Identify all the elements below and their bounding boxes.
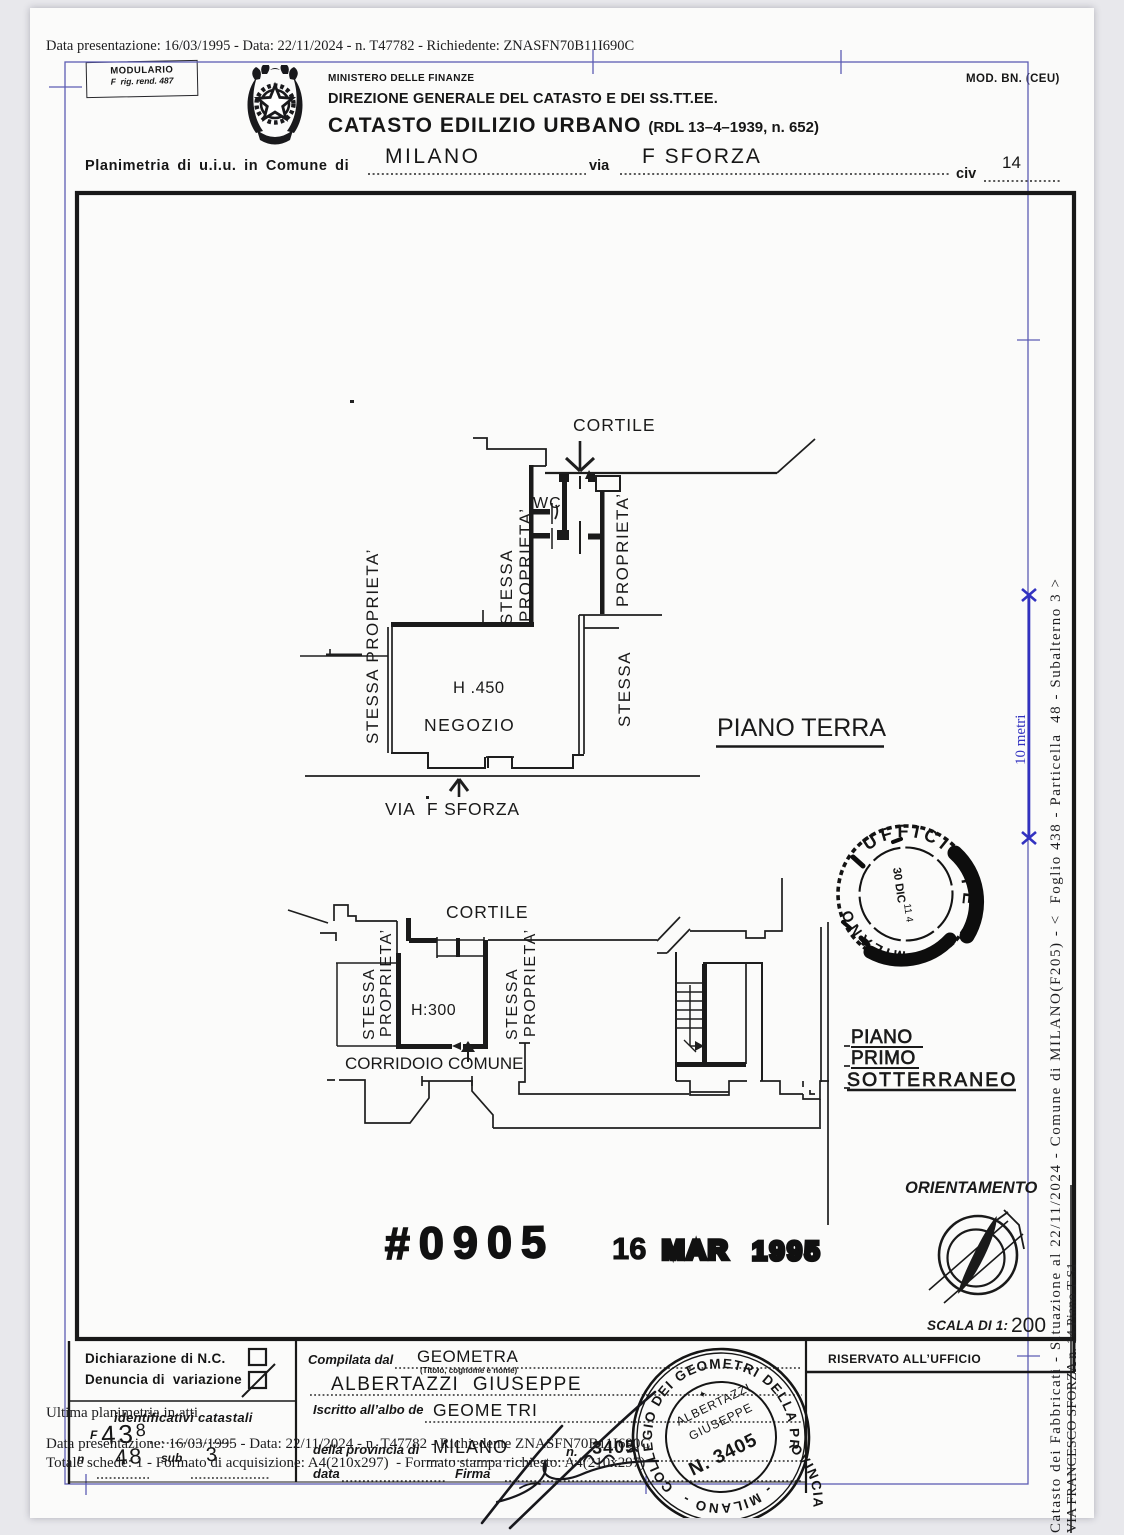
svg-text:PIANO: PIANO [851, 1027, 913, 1048]
svg-text:1995: 1995 [752, 1236, 822, 1266]
svg-text:WC: WC [533, 495, 562, 512]
svg-text:CORTILE: CORTILE [446, 902, 529, 922]
svg-text:16: 16 [612, 1231, 646, 1266]
svg-text:PROPRIETA’: PROPRIETA’ [522, 928, 539, 1037]
svg-text:#0905: #0905 [385, 1216, 556, 1269]
svg-text:PROPRIETA’: PROPRIETA’ [613, 493, 632, 608]
svg-text:STESSA: STESSA [504, 968, 521, 1040]
svg-text:STESSA: STESSA [615, 651, 634, 727]
svg-text:VIA F SFORZA: VIA F SFORZA [385, 799, 520, 819]
svg-text:MAR: MAR [662, 1235, 730, 1265]
svg-text:CORRIDOIO COMUNE: CORRIDOIO COMUNE [345, 1054, 524, 1073]
svg-text:CORTILE: CORTILE [573, 415, 656, 435]
svg-text:10 metri: 10 metri [1013, 715, 1029, 765]
svg-text:200: 200 [1011, 1314, 1046, 1337]
svg-text:STESSA: STESSA [497, 549, 516, 625]
svg-text:11 4: 11 4 [901, 903, 915, 924]
svg-text:SOTTERRANEO: SOTTERRANEO [847, 1069, 1017, 1091]
svg-text:PIANO TERRA: PIANO TERRA [717, 714, 886, 742]
svg-text:30 DIC: 30 DIC [890, 867, 907, 904]
svg-text:STESSA: STESSA [361, 968, 378, 1040]
svg-text:H .450: H .450 [453, 679, 505, 697]
svg-text:STESSA PROPRIETA’: STESSA PROPRIETA’ [363, 548, 382, 744]
svg-text:H:300: H:300 [411, 1002, 456, 1019]
svg-text:PRIMO: PRIMO [851, 1048, 916, 1069]
svg-text:NEGOZIO: NEGOZIO [424, 715, 515, 735]
svg-text:VIA FRANCESCO SFORZA n. 14 Pia: VIA FRANCESCO SFORZA n. 14 Piano T-S1 [1065, 1262, 1080, 1533]
svg-text:ORIENTAMENTO: ORIENTAMENTO [905, 1179, 1037, 1197]
svg-text:PROPRIETA’: PROPRIETA’ [378, 928, 395, 1037]
svg-text:SCALA DI 1:: SCALA DI 1: [927, 1318, 1008, 1333]
svg-text:PROPRIETA’: PROPRIETA’ [516, 508, 535, 623]
svg-text:Catasto dei Fabbricati - Situa: Catasto dei Fabbricati - Situazione al 2… [1048, 577, 1064, 1533]
